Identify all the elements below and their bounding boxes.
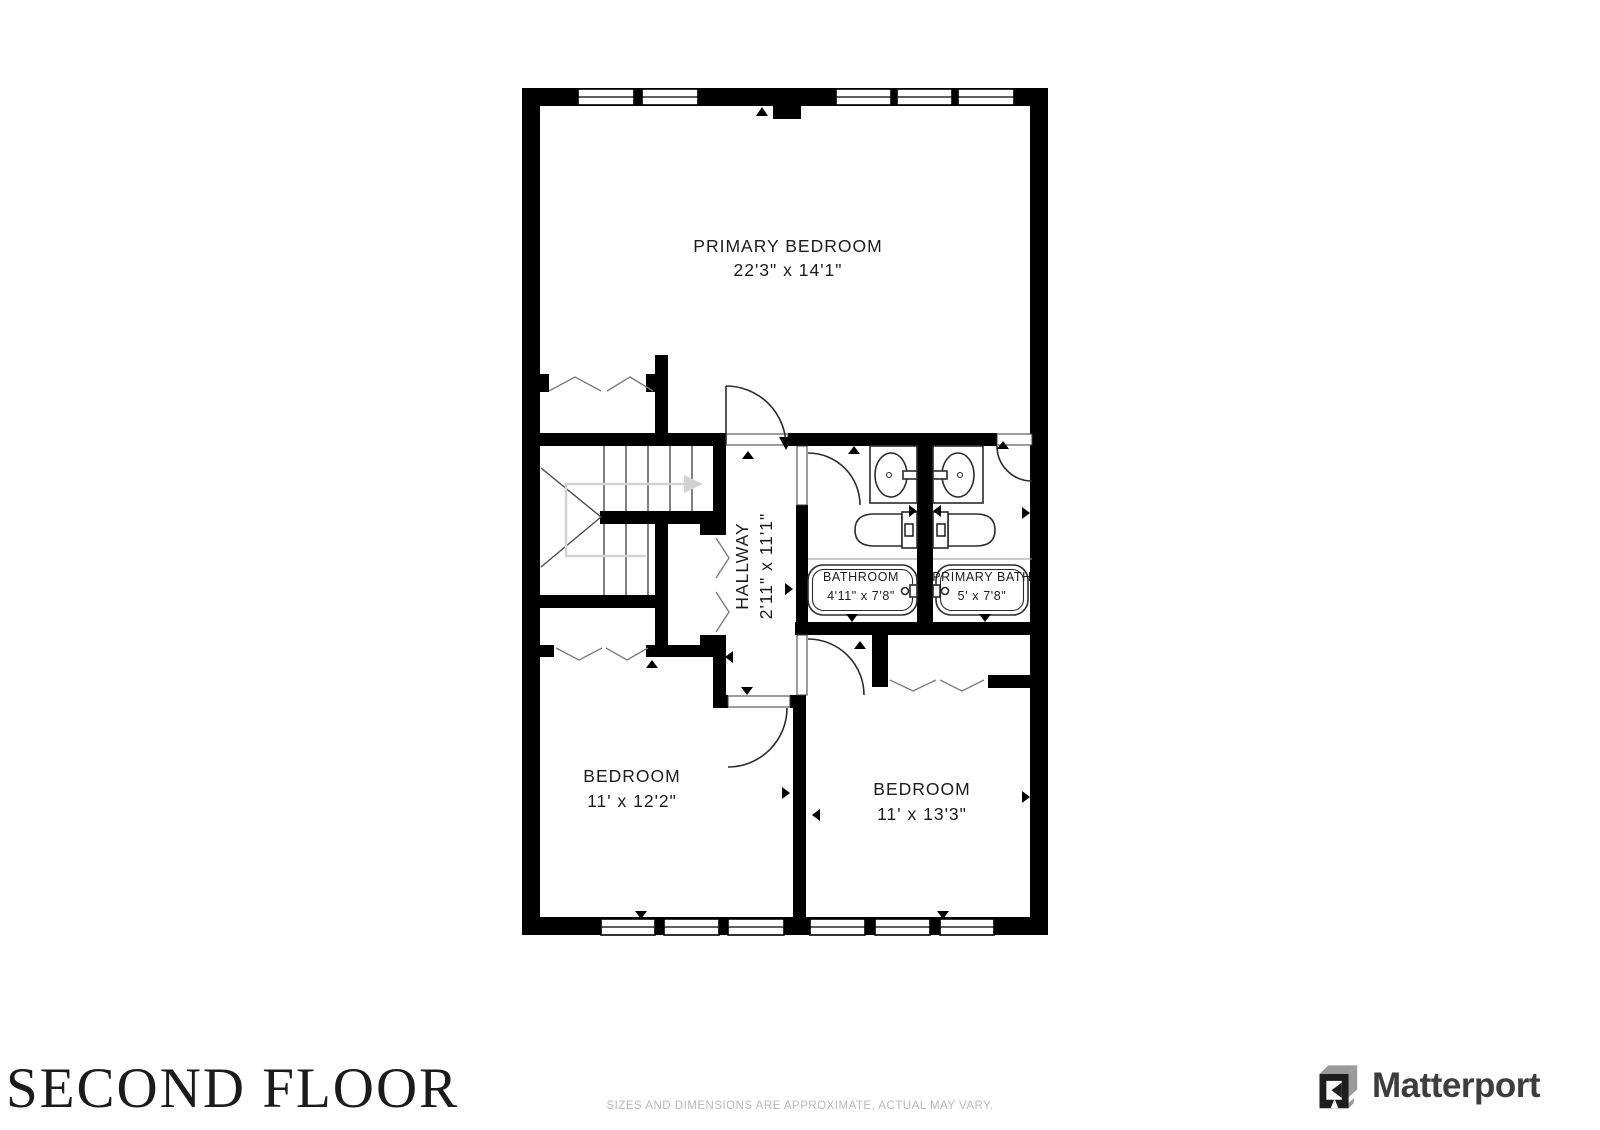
bathtub-bathroom xyxy=(808,559,917,615)
room-label-bathroom: BATHROOM xyxy=(823,570,899,584)
room-label-primary-bath: PRIMARY BATH xyxy=(932,570,1032,584)
sink-primary-bath xyxy=(933,446,983,503)
brand-name: Matterport xyxy=(1372,1066,1540,1106)
window xyxy=(875,919,930,935)
room-dims-bathroom: 4'11" x 7'8" xyxy=(827,589,895,603)
window xyxy=(664,919,719,935)
floor-title: SECOND FLOOR xyxy=(6,1056,459,1121)
room-dims-bedroom-right: 11' x 13'3" xyxy=(877,804,967,824)
room-dims-bedroom-left: 11' x 12'2" xyxy=(587,791,677,811)
disclaimer-text: SIZES AND DIMENSIONS ARE APPROXIMATE, AC… xyxy=(606,1100,993,1112)
window xyxy=(836,89,891,105)
door-bedroom-right xyxy=(797,635,864,695)
door-bedroom-left xyxy=(728,696,790,767)
window xyxy=(958,89,1014,105)
door-primary-bedroom xyxy=(726,386,793,450)
bathtub-primary-bath xyxy=(933,559,1032,615)
window xyxy=(810,919,865,935)
room-dims-hallway: 2'11" x 11'1" xyxy=(756,513,776,619)
toilet-bathroom xyxy=(855,512,917,548)
window xyxy=(897,89,952,105)
room-dims-primary-bedroom: 22'3" x 14'1" xyxy=(734,260,843,280)
room-label-primary-bedroom: PRIMARY BEDROOM xyxy=(693,236,882,256)
window xyxy=(578,89,634,105)
hallway-closet-opening xyxy=(716,538,729,632)
room-dims-primary-bath: 5' x 7'8" xyxy=(958,589,1007,603)
sink-bathroom xyxy=(870,446,917,503)
room-label-bedroom-left: BEDROOM xyxy=(583,766,680,786)
window xyxy=(601,919,655,935)
matterport-icon xyxy=(1314,1062,1361,1110)
closet-doors-bedroom-right xyxy=(890,680,984,691)
toilet-primary-bath xyxy=(933,512,995,548)
door-bathroom xyxy=(797,446,860,505)
floor-plan: PRIMARY BEDROOM 22'3" x 14'1" HALLWAY 2'… xyxy=(0,0,1600,1130)
door-primary-bath xyxy=(997,434,1032,481)
window xyxy=(642,89,698,105)
window xyxy=(728,919,784,935)
matterport-logo: Matterport xyxy=(1314,1062,1540,1110)
closet-doors-primary-bedroom xyxy=(549,377,653,391)
closet-doors-bedroom-left xyxy=(556,648,648,660)
room-label-bedroom-right: BEDROOM xyxy=(873,779,970,799)
room-label-hallway: HALLWAY xyxy=(732,522,752,609)
window xyxy=(940,919,994,935)
